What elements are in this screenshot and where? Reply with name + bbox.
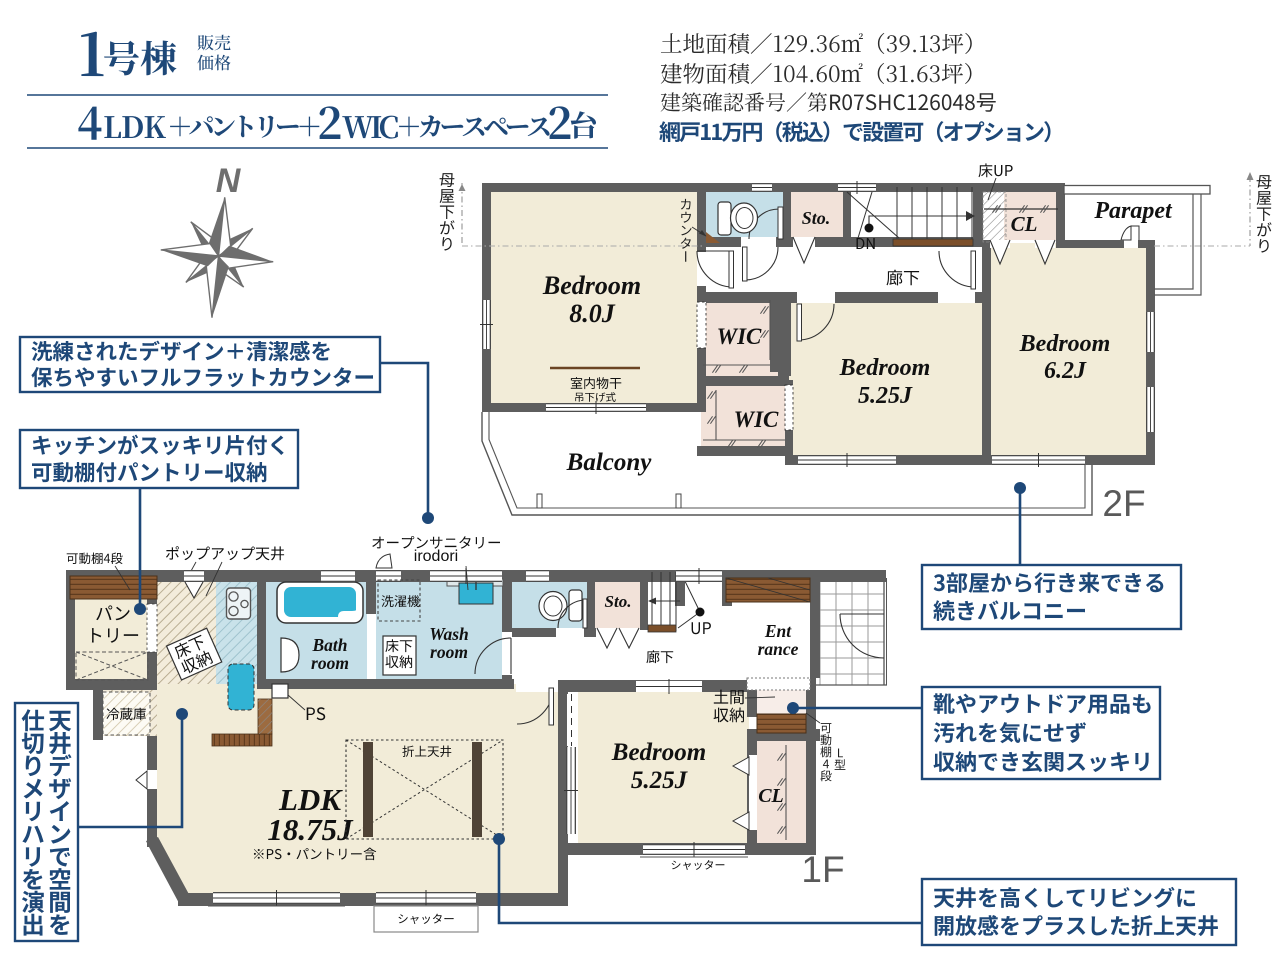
svg-text:Bedroom: Bedroom (542, 271, 641, 300)
svg-text:irodori: irodori (414, 548, 458, 565)
svg-text:CL: CL (1011, 212, 1038, 236)
svg-text:Bedroom: Bedroom (839, 355, 931, 381)
svg-text:Sto.: Sto. (605, 592, 632, 611)
svg-text:8.0J: 8.0J (569, 299, 616, 328)
svg-text:Wash: Wash (429, 624, 469, 644)
svg-text:Sto.: Sto. (802, 208, 831, 228)
svg-text:CL: CL (758, 785, 784, 807)
svg-text:rance: rance (758, 639, 799, 659)
svg-text:N: N (216, 162, 242, 200)
svg-text:room: room (311, 653, 349, 673)
svg-text:WIC: WIC (717, 324, 762, 349)
svg-text:Bath: Bath (311, 635, 347, 655)
svg-text:room: room (430, 642, 468, 662)
svg-text:18.75J: 18.75J (267, 812, 354, 847)
svg-text:Parapet: Parapet (1093, 198, 1173, 224)
svg-text:WIC: WIC (734, 407, 779, 432)
svg-text:Balcony: Balcony (566, 449, 653, 476)
svg-text:5.25J: 5.25J (631, 767, 689, 794)
svg-text:Bedroom: Bedroom (1019, 331, 1111, 357)
svg-text:Bedroom: Bedroom (611, 739, 706, 766)
svg-text:5.25J: 5.25J (858, 383, 913, 409)
svg-text:6.2J: 6.2J (1044, 358, 1087, 384)
svg-text:1F: 1F (801, 849, 844, 890)
svg-text:2F: 2F (1102, 483, 1145, 524)
svg-text:Ent: Ent (764, 621, 792, 641)
